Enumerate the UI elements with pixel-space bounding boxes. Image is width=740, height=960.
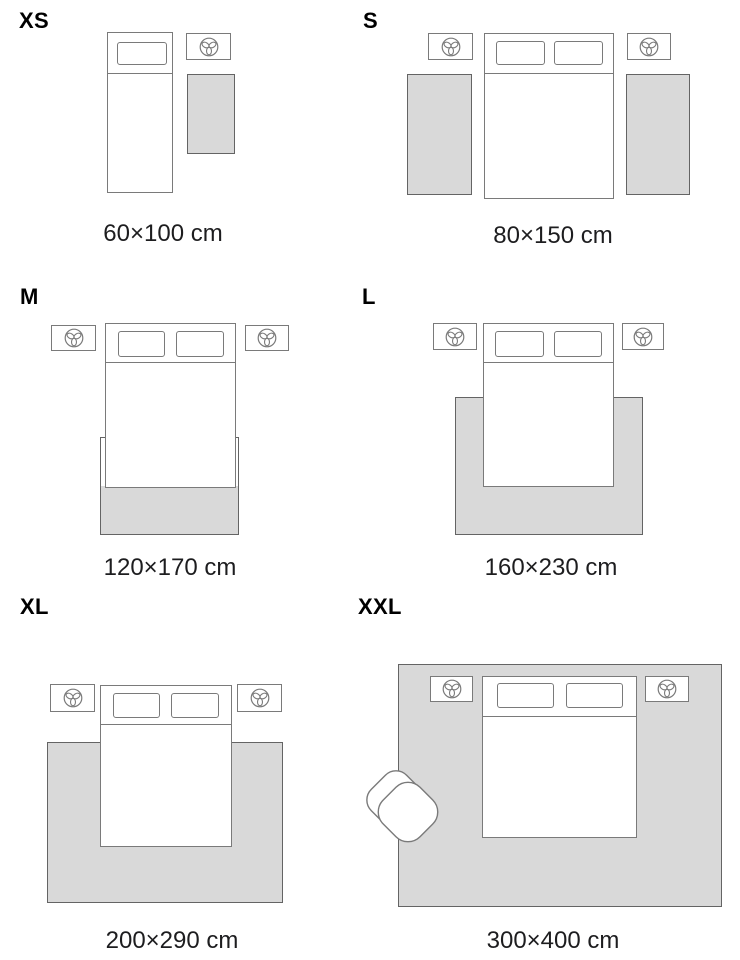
nightstand xyxy=(430,676,473,702)
nightstand xyxy=(245,325,289,351)
bed-top-view xyxy=(482,676,637,838)
size-label-xs: XS xyxy=(19,10,49,32)
bed-top-view xyxy=(483,323,614,487)
nightstand xyxy=(51,325,96,351)
plant-icon xyxy=(656,678,678,700)
rug xyxy=(407,74,472,195)
headboard-divider xyxy=(108,73,172,74)
pillow xyxy=(495,331,544,357)
nightstand xyxy=(645,676,689,702)
size-caption-xxl: 300×400 cm xyxy=(487,929,620,953)
plant-icon xyxy=(198,36,220,58)
pillow xyxy=(566,683,623,708)
plant-icon xyxy=(249,687,271,709)
bed-top-view xyxy=(107,32,173,193)
rug-fill xyxy=(101,486,238,534)
headboard-divider xyxy=(484,362,613,363)
size-label-l: L xyxy=(362,286,376,308)
bed-top-view xyxy=(484,33,614,199)
nightstand xyxy=(50,684,95,712)
plant-icon xyxy=(638,36,660,58)
plant-icon xyxy=(256,327,278,349)
headboard-divider xyxy=(101,724,231,725)
nightstand xyxy=(622,323,664,350)
rug xyxy=(626,74,690,195)
size-label-xxl: XXL xyxy=(358,596,402,618)
headboard-divider xyxy=(106,362,235,363)
pillow xyxy=(113,693,160,718)
plant-icon xyxy=(63,327,85,349)
pillow xyxy=(118,331,165,357)
plant-icon xyxy=(62,687,84,709)
nightstand xyxy=(627,33,671,60)
size-caption-m: 120×170 cm xyxy=(104,556,237,580)
headboard-divider xyxy=(483,716,636,717)
size-caption-xs: 60×100 cm xyxy=(103,222,222,246)
pillow xyxy=(554,41,603,65)
nightstand xyxy=(186,33,231,60)
size-caption-l: 160×230 cm xyxy=(485,556,618,580)
plant-icon xyxy=(440,36,462,58)
pillow xyxy=(176,331,224,357)
pillow xyxy=(497,683,554,708)
plant-icon xyxy=(444,326,466,348)
headboard-divider xyxy=(485,73,613,74)
size-caption-xl: 200×290 cm xyxy=(106,929,239,953)
pillow xyxy=(117,42,167,65)
size-label-xl: XL xyxy=(20,596,49,618)
pillow xyxy=(554,331,602,357)
nightstand xyxy=(433,323,477,350)
bed-top-view xyxy=(105,323,236,488)
bed-top-view xyxy=(100,685,232,847)
nightstand xyxy=(428,33,473,60)
size-label-m: M xyxy=(20,286,39,308)
size-label-s: S xyxy=(363,10,378,32)
rug xyxy=(187,74,235,154)
plant-icon xyxy=(632,326,654,348)
nightstand xyxy=(237,684,282,712)
plant-icon xyxy=(441,678,463,700)
pillow xyxy=(171,693,219,718)
size-caption-s: 80×150 cm xyxy=(493,224,612,248)
pillow xyxy=(496,41,545,65)
rug-size-guide: XS 60×100 cm S 80×150 cm M xyxy=(0,0,740,960)
armchair xyxy=(356,760,448,852)
